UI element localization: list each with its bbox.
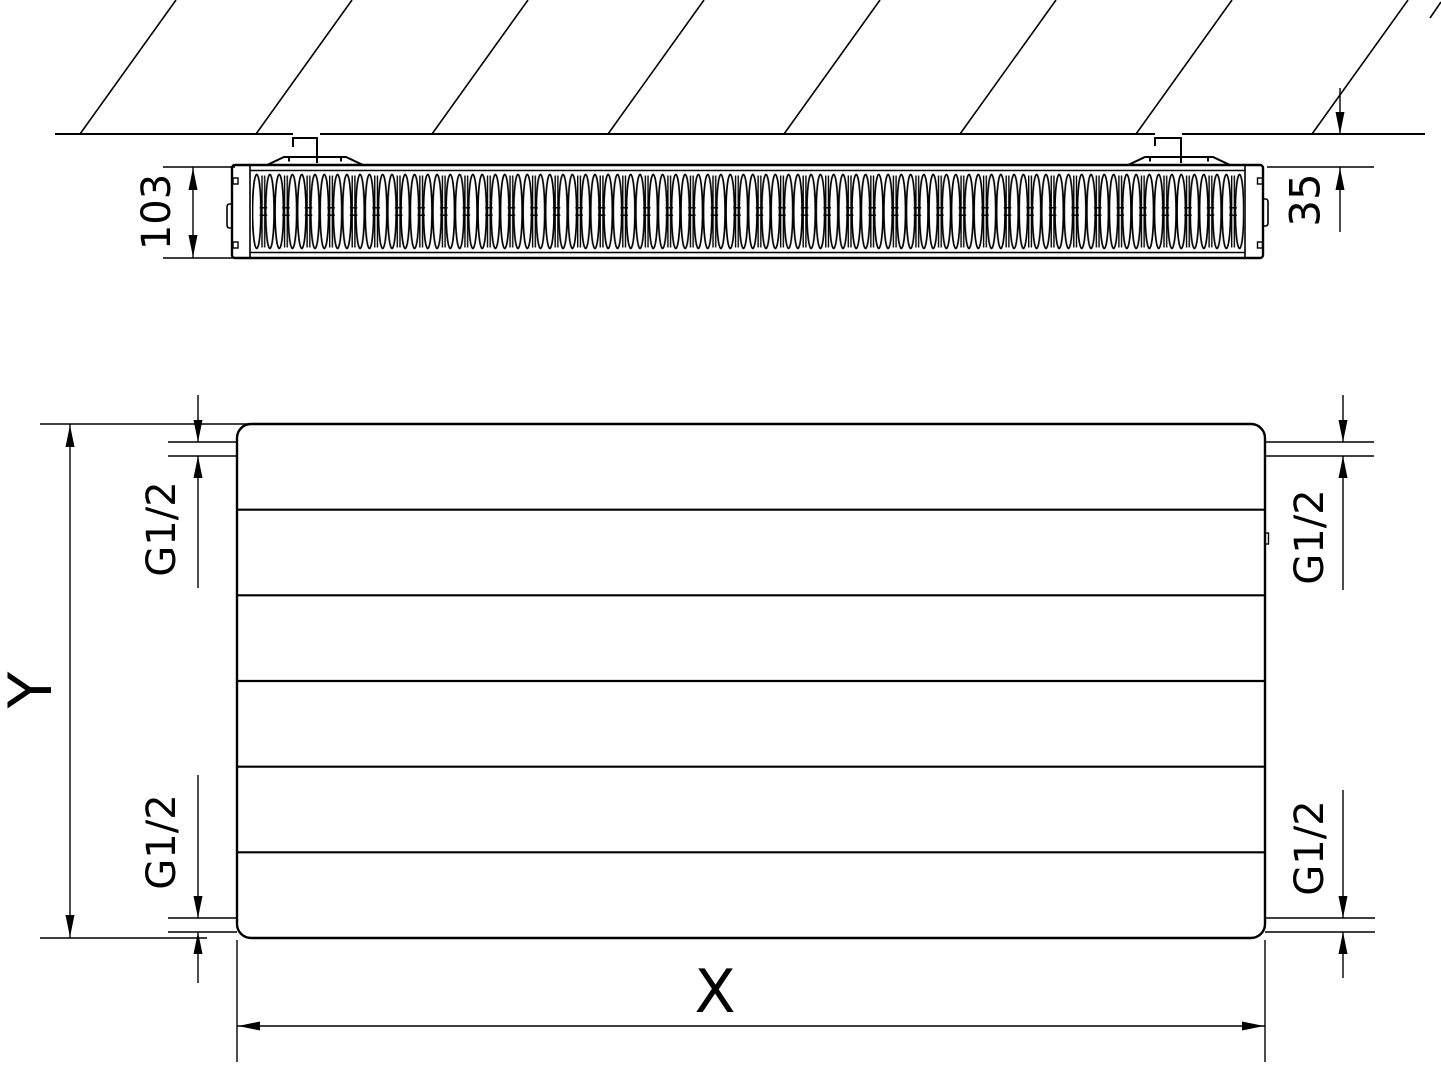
width-dimension-label: X <box>694 957 735 1027</box>
depth-dimension-label: 103 <box>134 174 180 250</box>
connection-label-top-right: G1/2 <box>1287 489 1333 584</box>
connection-label-top-left: G1/2 <box>139 481 185 576</box>
radiator-top-view <box>227 165 1268 258</box>
radiator-technical-drawing: 103 35 <box>0 0 1441 1067</box>
height-dimension-label: Y <box>0 671 66 709</box>
connection-label-bottom-left: G1/2 <box>139 794 185 889</box>
connection-label-bottom-right: G1/2 <box>1287 800 1333 895</box>
wall-distance-label: 35 <box>1281 173 1330 226</box>
convector-fins <box>252 172 1244 251</box>
canvas-background <box>0 0 1441 1067</box>
